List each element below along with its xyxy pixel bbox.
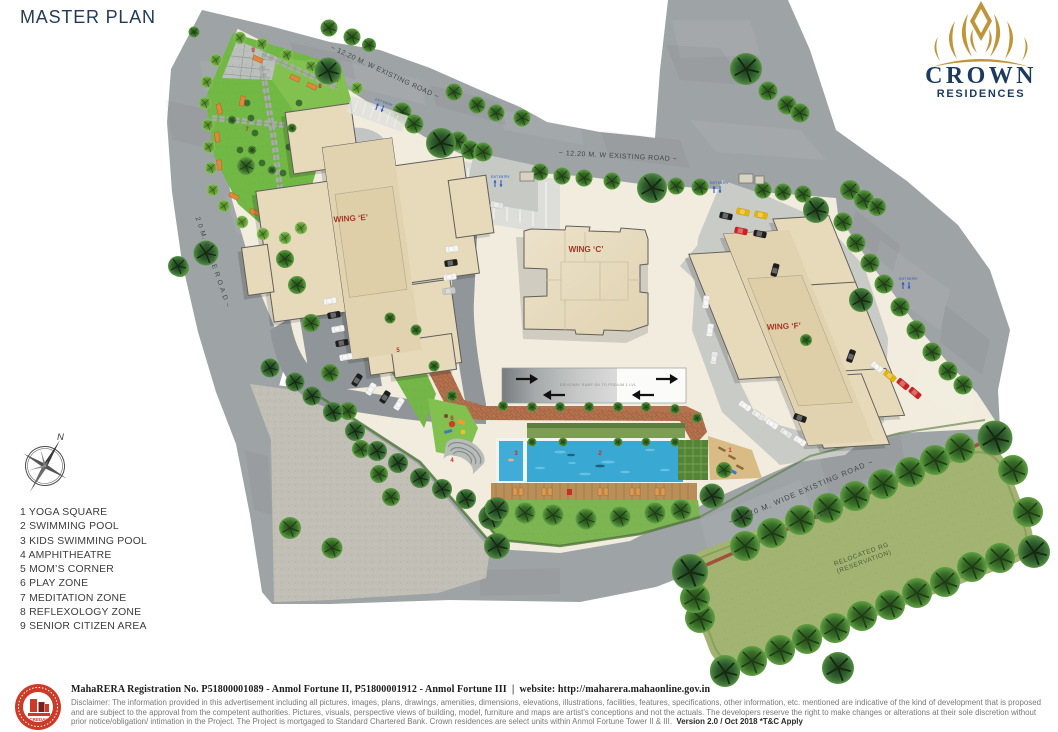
svg-text:RESIDENCES: RESIDENCES (937, 88, 1026, 100)
svg-text:N: N (57, 432, 64, 443)
svg-text:EXIT ENTRY: EXIT ENTRY (899, 277, 919, 281)
svg-text:EXIT ENTRY: EXIT ENTRY (491, 175, 511, 179)
svg-text:CROWN: CROWN (925, 63, 1037, 89)
svg-text:DRIVEWAY RAMP DN TO PODIUM 1 L: DRIVEWAY RAMP DN TO PODIUM 1 LVL (560, 383, 637, 387)
svg-text:EXIT ENTRY: EXIT ENTRY (710, 181, 730, 185)
svg-text:CREDAI: CREDAI (29, 717, 46, 722)
svg-text:WING ‘C’: WING ‘C’ (568, 245, 603, 254)
svg-text:WING ‘F’: WING ‘F’ (767, 321, 802, 332)
